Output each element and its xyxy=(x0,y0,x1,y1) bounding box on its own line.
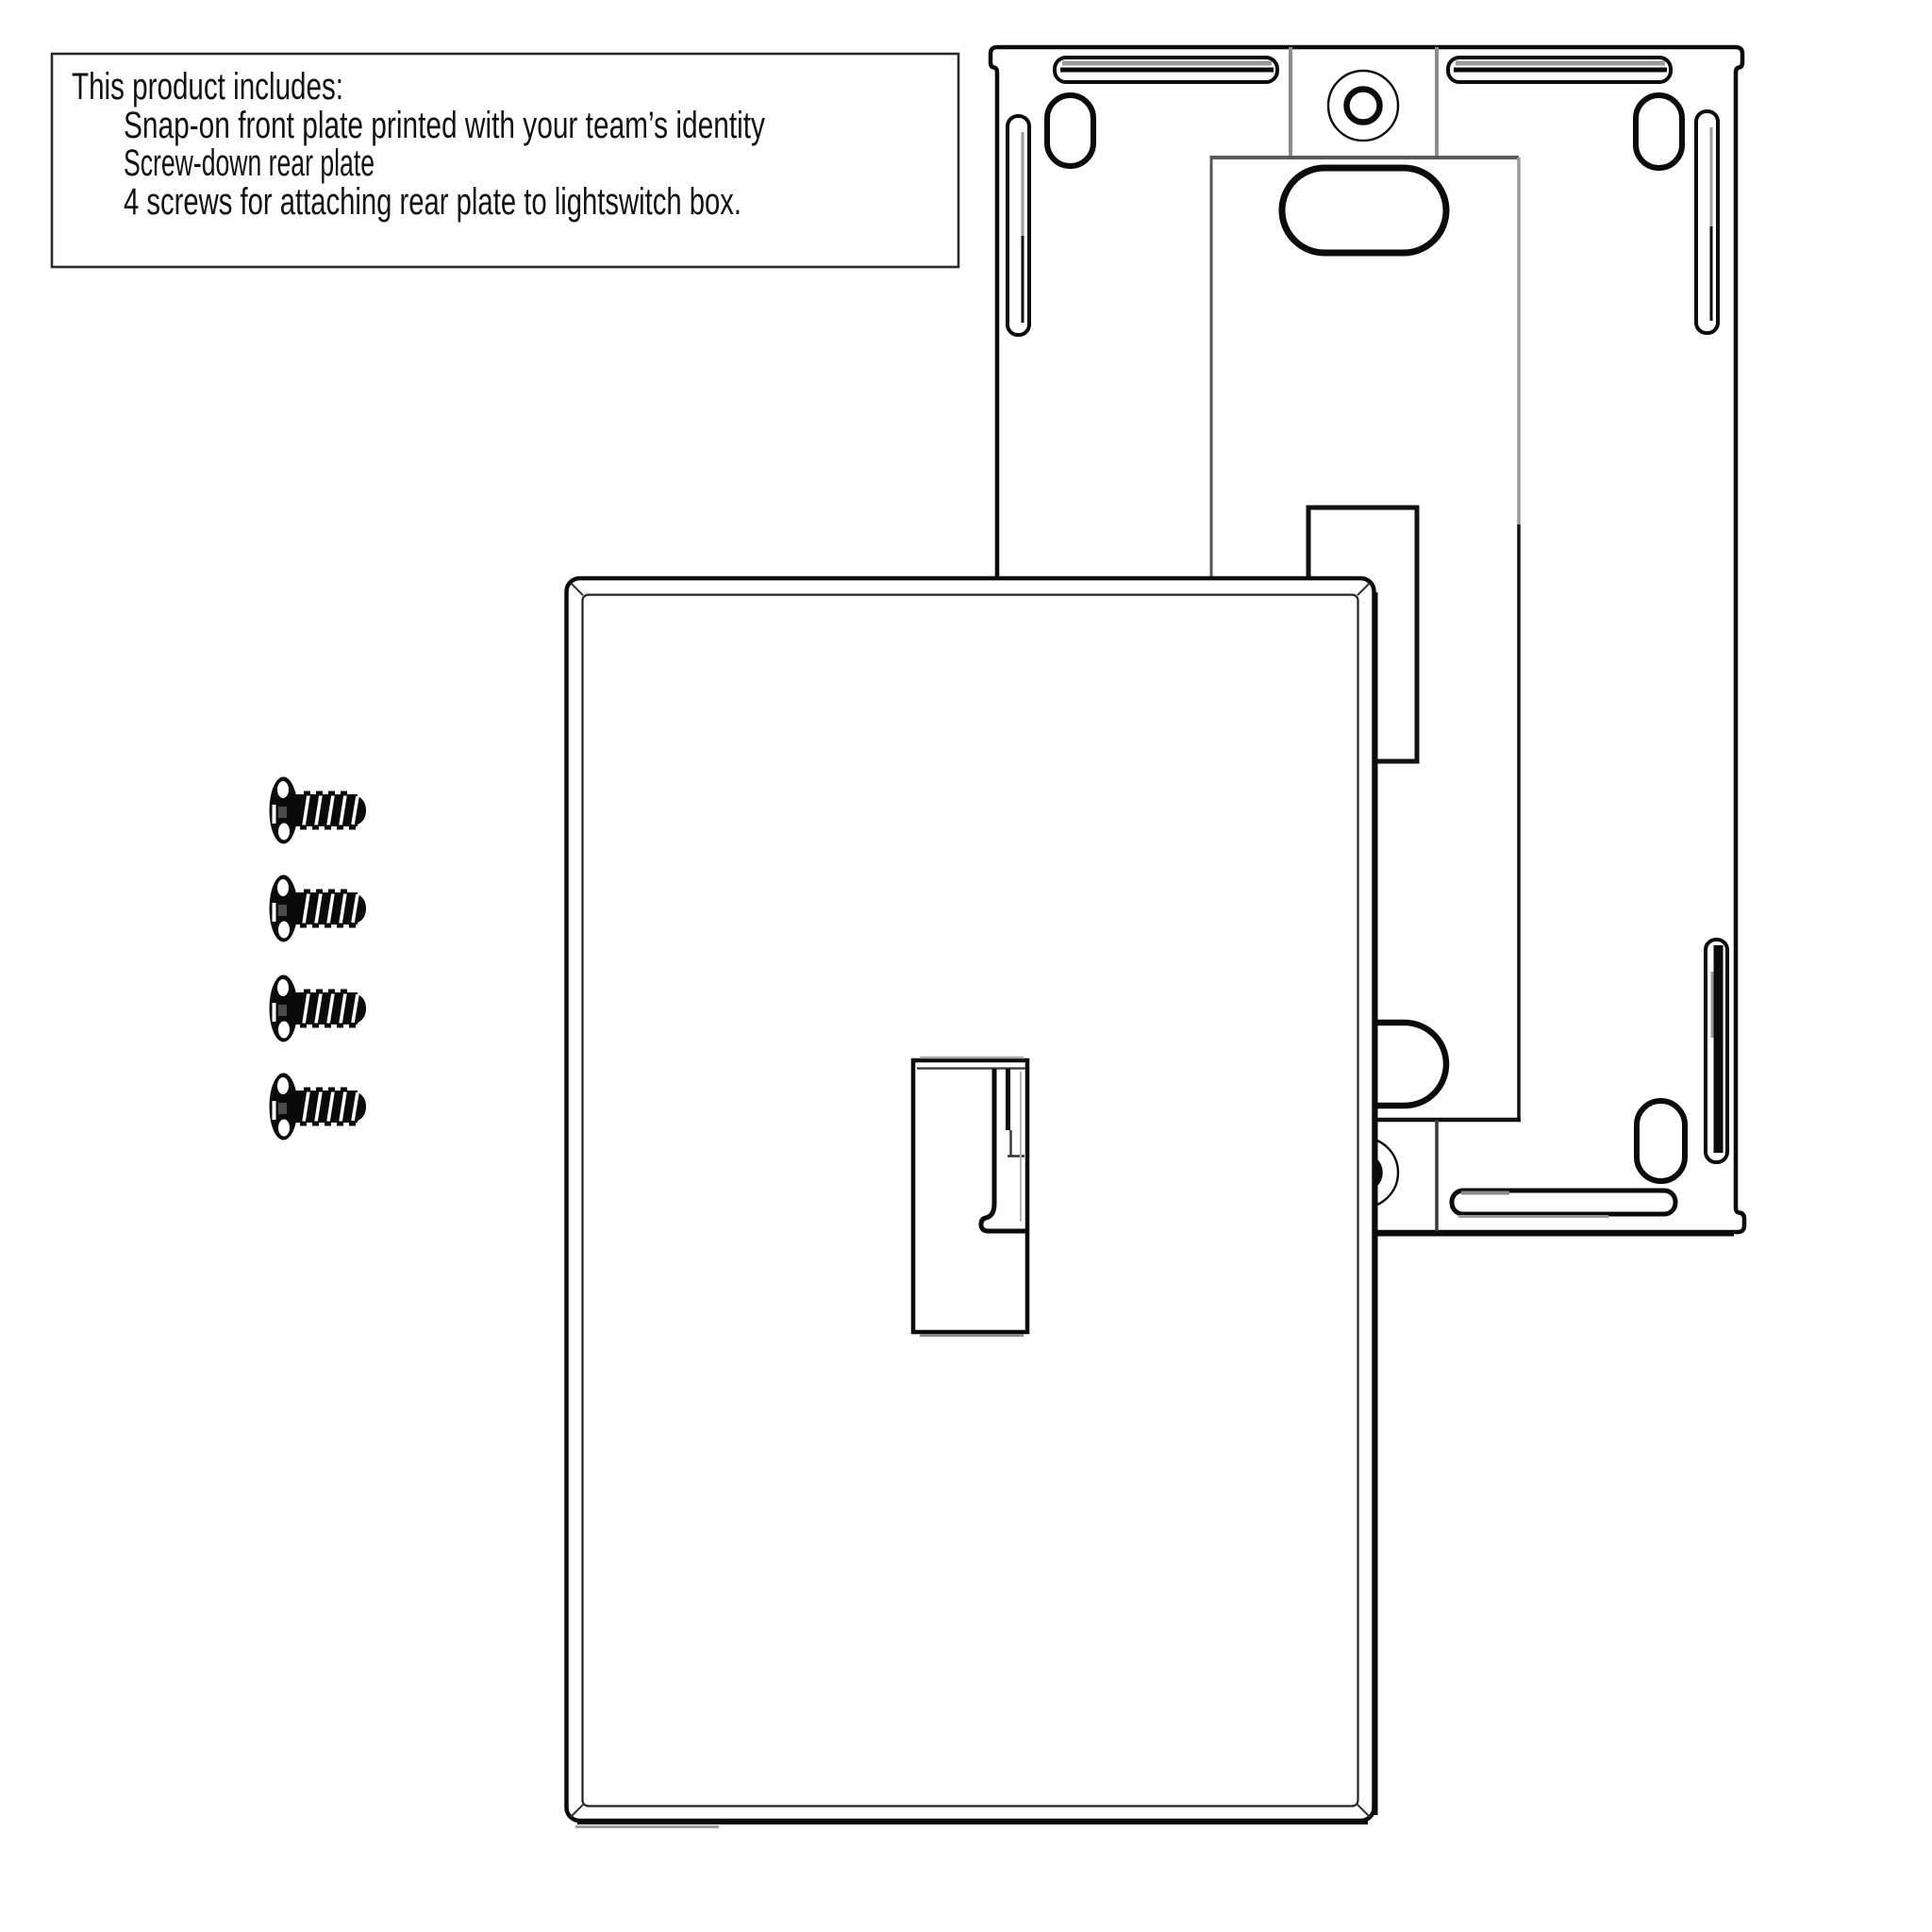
svg-text:Snap-on front plate printed wi: Snap-on front plate printed with your te… xyxy=(124,105,765,146)
svg-text:Screw-down rear plate: Screw-down rear plate xyxy=(124,142,375,184)
svg-text:This product includes:: This product includes: xyxy=(72,66,343,108)
svg-text:4 screws for attaching rear pl: 4 screws for attaching rear plate to lig… xyxy=(124,181,741,223)
